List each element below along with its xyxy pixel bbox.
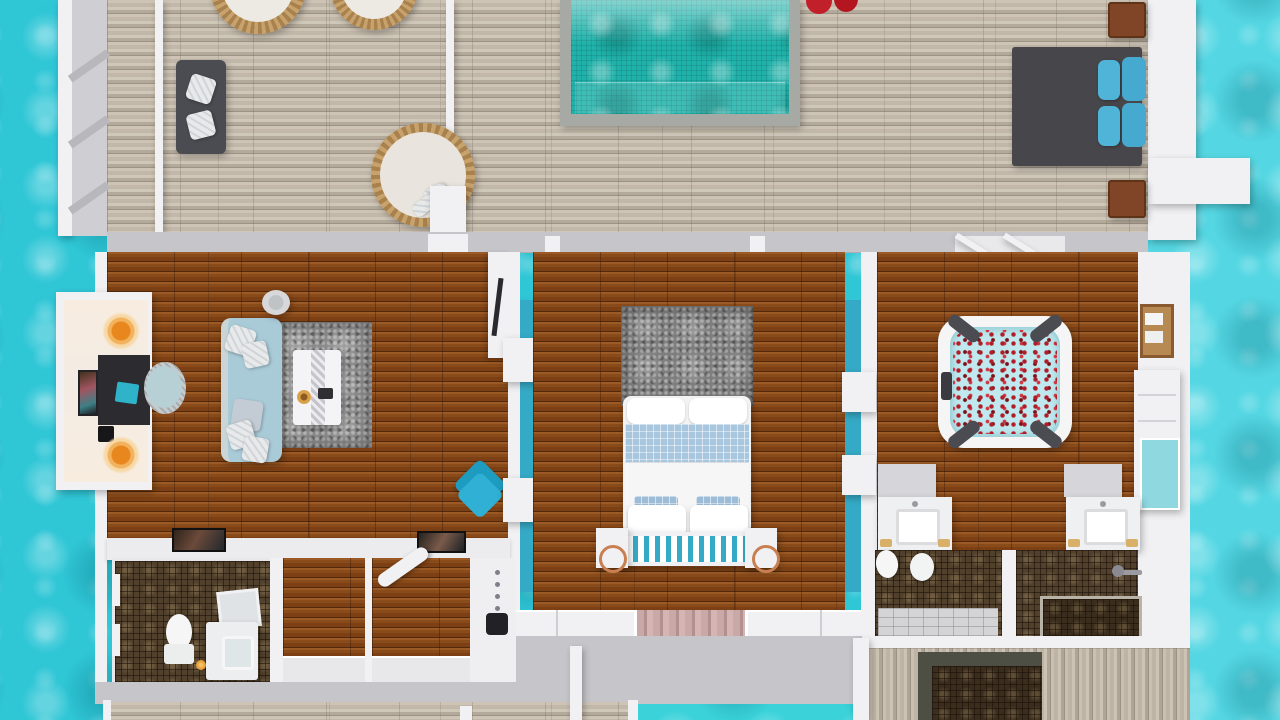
- hand-towel: [1068, 539, 1080, 547]
- bedroom-door-frame: [750, 236, 765, 252]
- bathroom-window: [112, 574, 120, 606]
- living-door-threshold: [428, 234, 468, 252]
- pool-lounger: [1122, 57, 1146, 101]
- pool-steps: [575, 82, 785, 113]
- vanity-mirror: [878, 464, 936, 497]
- towel: [1145, 313, 1163, 325]
- deck-door-step: [430, 186, 466, 232]
- shower-mixer: [486, 613, 508, 635]
- desk-chair-pouf: [146, 366, 182, 408]
- deck-edge-left: [58, 0, 72, 236]
- shower-knob: [495, 570, 500, 575]
- shower-head: [1112, 565, 1124, 577]
- teal-accent-wall: [845, 300, 861, 592]
- wardrobe-divider: [820, 610, 822, 638]
- desk-lamp: [102, 312, 140, 350]
- wall-art: [78, 370, 98, 416]
- glass-sink: [222, 636, 254, 670]
- desk-tablet: [115, 382, 140, 405]
- nightstand-ring-handle: [752, 545, 780, 573]
- sofa-pillow: [241, 340, 271, 370]
- stall-divider-wall: [1002, 550, 1016, 640]
- shower-room: [470, 558, 516, 690]
- walkway-arm: [1148, 158, 1250, 204]
- rose-petals: [953, 330, 1057, 434]
- hot-tub-control-panel: [941, 372, 952, 400]
- rim-brace: [68, 182, 110, 215]
- candle: [196, 660, 206, 670]
- vanity: [1066, 497, 1140, 550]
- hand-towel: [880, 539, 892, 547]
- faucet: [1100, 501, 1106, 507]
- wall-shelf: [503, 478, 537, 522]
- villa-south-wall: [95, 682, 862, 704]
- hand-towel: [938, 539, 950, 547]
- vanity: [878, 497, 952, 550]
- headboard-pillow: [689, 398, 747, 424]
- wall-tablet-art: [172, 528, 226, 552]
- deck-post: [460, 706, 472, 720]
- shower-knob: [495, 582, 500, 587]
- drinks-table: [262, 290, 290, 315]
- wall-shelf: [503, 338, 537, 382]
- pool-lounger: [1098, 60, 1120, 100]
- toilet-tank: [164, 644, 194, 664]
- hand-towel: [1126, 539, 1138, 547]
- bed-quilt-band: [625, 424, 749, 462]
- nightstand-ring-handle: [599, 545, 627, 573]
- decor-bowl: [297, 390, 311, 404]
- shelf-line: [1138, 420, 1176, 422]
- side-table: [1108, 180, 1146, 218]
- outdoor-shower-tray: [932, 666, 1042, 720]
- rim-brace: [68, 116, 110, 149]
- pool-lounger: [1098, 106, 1120, 146]
- deck-rim-left: [72, 0, 107, 236]
- curtains: [634, 610, 748, 638]
- foot-bench-fabric: [622, 536, 752, 562]
- pool-lounger: [1122, 103, 1146, 147]
- shower-knob: [495, 594, 500, 599]
- sink: [1084, 509, 1128, 545]
- sofa-pillow: [241, 435, 270, 464]
- villa-floorplan-scene: [0, 0, 1280, 720]
- pool-edge-post: [628, 700, 638, 720]
- pool-edge-post: [853, 638, 869, 720]
- pool-light-reflection: [571, 0, 789, 44]
- shower-tray: [878, 608, 998, 638]
- deck-post: [570, 646, 582, 720]
- outdoor-sofa: [176, 60, 226, 154]
- wall-shelf: [842, 455, 876, 495]
- remote: [318, 388, 333, 399]
- bedroom-south-wall: [516, 636, 862, 684]
- rim-brace: [68, 50, 110, 83]
- bidet: [910, 553, 934, 581]
- deck-post: [103, 700, 111, 720]
- sink: [896, 509, 940, 545]
- glass-shower-panel: [1140, 438, 1180, 510]
- wardrobe-divider: [556, 610, 558, 638]
- towel-ladder: [1140, 304, 1174, 358]
- vanity-mirror: [1064, 464, 1122, 497]
- headboard-pillow: [627, 398, 685, 424]
- bedroom-door-frame: [545, 236, 560, 252]
- deck-divider-wall: [155, 0, 163, 232]
- wall-shelf: [842, 372, 876, 412]
- side-table: [1108, 2, 1146, 38]
- bedroom-rug: [621, 306, 753, 406]
- dressing-niche: [283, 558, 365, 656]
- niche-wall: [270, 558, 283, 684]
- niche-wall: [365, 558, 372, 684]
- deck-rim-right: [1148, 0, 1196, 240]
- shelf-line: [1138, 394, 1176, 396]
- shower-knob: [495, 606, 500, 611]
- desk-lamp: [102, 436, 140, 474]
- bathroom-window: [112, 624, 120, 656]
- towel: [1145, 331, 1163, 343]
- shelf-unit: [1134, 370, 1180, 510]
- rear-deck-strip: [107, 702, 637, 720]
- faucet: [912, 501, 918, 507]
